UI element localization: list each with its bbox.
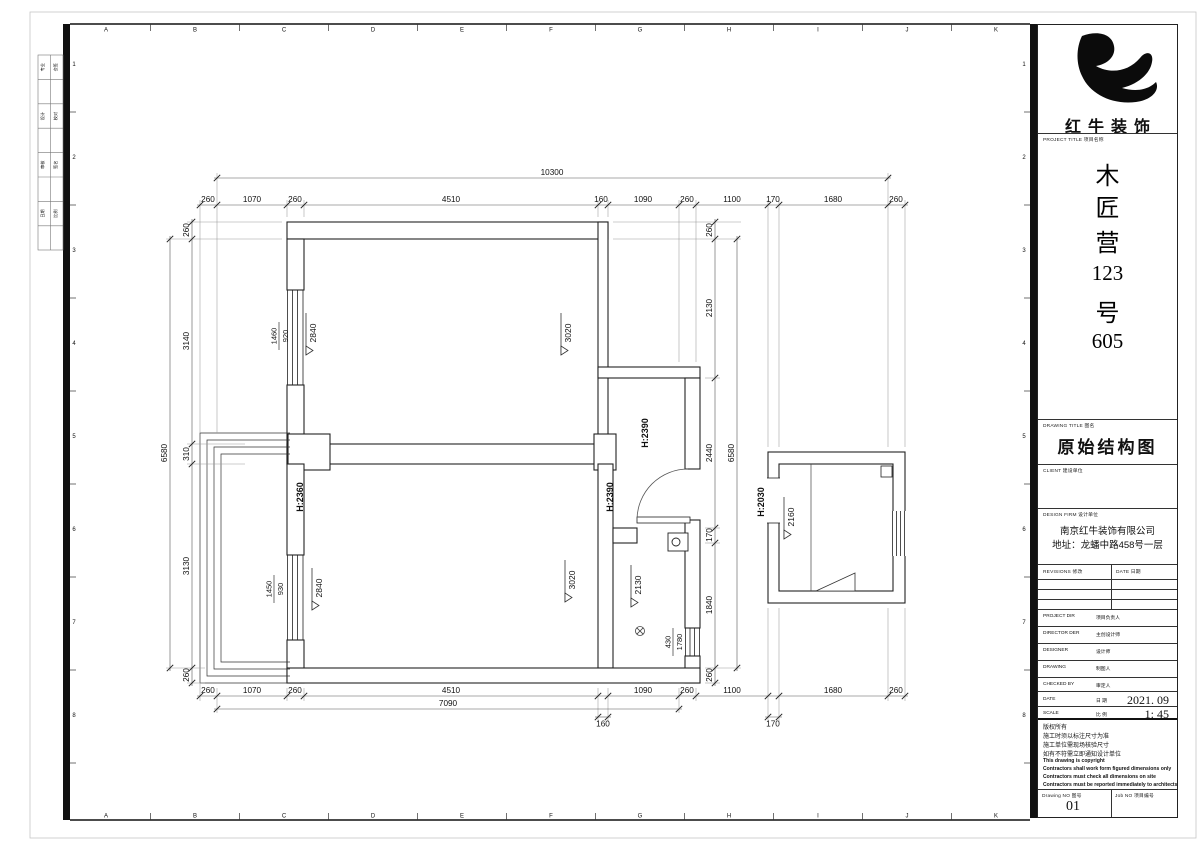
revisions-divider — [1111, 564, 1112, 609]
svg-text:B: B — [193, 814, 197, 820]
svg-text:1840: 1840 — [705, 595, 714, 614]
project-title-label: PROJECT TITLE 项目名称 — [1043, 136, 1104, 143]
entry-door — [637, 469, 690, 523]
svg-text:G: G — [638, 814, 643, 820]
svg-text:260: 260 — [680, 686, 694, 695]
project-name-char: 123 — [1038, 261, 1177, 286]
row-director: DIRECTOR DER — [1043, 631, 1079, 636]
dimension-chain: 170 — [765, 714, 782, 729]
height-label: H:2360 — [295, 482, 305, 512]
svg-text:A: A — [104, 814, 108, 820]
copyright-note: 版权所有 — [1043, 722, 1067, 731]
svg-text:170: 170 — [766, 720, 780, 729]
shaft-opening — [766, 478, 781, 523]
svg-text:260: 260 — [680, 195, 694, 204]
svg-text:4: 4 — [72, 341, 76, 347]
revisions-label: REVISIONS 修改 — [1043, 568, 1082, 575]
svg-text:4510: 4510 — [442, 195, 461, 204]
svg-text:430: 430 — [664, 636, 673, 649]
svg-text:3020: 3020 — [563, 323, 573, 342]
row-checked-by: CHECKED BY — [1043, 682, 1074, 687]
svg-text:5: 5 — [72, 434, 76, 440]
svg-text:3130: 3130 — [182, 556, 191, 575]
shaft-inner — [779, 464, 893, 591]
wall-corridor-step — [598, 367, 700, 378]
window-bathroom — [686, 628, 700, 656]
svg-text:160: 160 — [594, 195, 608, 204]
svg-text:会签: 会签 — [52, 62, 59, 71]
drawing-title-label: DRAWING TITLE 图名 — [1043, 422, 1094, 429]
svg-text:8: 8 — [72, 713, 76, 719]
window-dimension-label: 4301780 — [664, 628, 685, 656]
elevator-shaft — [766, 452, 907, 603]
svg-text:H: H — [727, 814, 731, 820]
dimension-chain: 26010702604510160109026011001701680260 — [197, 195, 908, 208]
window-room-b — [288, 555, 304, 640]
svg-text:C: C — [282, 28, 287, 34]
project-name-char: 营 — [1038, 223, 1177, 258]
svg-text:1100: 1100 — [723, 195, 741, 204]
svg-text:K: K — [994, 28, 998, 34]
svg-text:6580: 6580 — [160, 443, 169, 462]
svg-text:1780: 1780 — [675, 634, 684, 651]
svg-text:F: F — [549, 28, 553, 34]
svg-text:310: 310 — [182, 447, 191, 461]
dimension-chain: 26010702604510109026011001680260 — [197, 686, 908, 699]
svg-text:2840: 2840 — [314, 578, 324, 597]
window-dimension-label: 1460920 — [270, 322, 291, 350]
svg-text:3: 3 — [1022, 248, 1026, 254]
svg-text:260: 260 — [705, 223, 714, 237]
svg-text:审核: 审核 — [39, 160, 46, 169]
title-block: 红牛装饰 PROJECT TITLE 项目名称 木 匠 营 123 号 605 … — [1037, 24, 1178, 818]
project-name-char: 木 — [1038, 156, 1177, 191]
svg-text:7090: 7090 — [439, 699, 458, 708]
svg-text:校对: 校对 — [52, 112, 59, 120]
svg-text:260: 260 — [201, 686, 215, 695]
svg-text:930: 930 — [276, 583, 285, 596]
window-dimension-label: 1450930 — [265, 575, 286, 603]
dimension-chain: 7090 — [214, 699, 682, 712]
drawing-title: 原始结构图 — [1038, 433, 1177, 458]
floor-plan — [200, 222, 907, 683]
wall-bath-top-stub — [613, 528, 637, 543]
svg-text:比例: 比例 — [52, 209, 59, 217]
svg-text:260: 260 — [889, 195, 903, 204]
row-scale: SCALE — [1043, 711, 1059, 716]
svg-text:D: D — [371, 28, 376, 34]
svg-text:H:2030: H:2030 — [756, 487, 766, 517]
project-name-char: 605 — [1038, 329, 1177, 354]
washer-drum — [672, 538, 680, 546]
svg-text:签名: 签名 — [52, 161, 59, 169]
svg-text:1450: 1450 — [265, 581, 274, 598]
wall-right-room-a — [598, 222, 608, 464]
binding-bar — [63, 24, 70, 820]
dimension-chain: 26031403103130260 — [182, 219, 195, 686]
svg-text:4: 4 — [1022, 341, 1026, 347]
design-firm-address: 地址：龙蟠中路458号一层 — [1038, 537, 1177, 551]
svg-text:E: E — [460, 814, 464, 820]
svg-text:260: 260 — [288, 686, 302, 695]
svg-text:I: I — [817, 28, 819, 34]
row-project-dir: PROJECT DIR — [1043, 614, 1075, 619]
svg-text:2: 2 — [72, 155, 76, 161]
dimension-chain: 6580 — [727, 236, 740, 671]
svg-text:2840: 2840 — [308, 323, 318, 342]
balcony — [200, 433, 290, 683]
wall-right-upper — [685, 378, 700, 469]
svg-text:2440: 2440 — [705, 443, 714, 462]
height-label: H:2390 — [605, 482, 615, 512]
dimension-chain: 160 — [595, 714, 611, 729]
svg-text:260: 260 — [705, 668, 714, 682]
svg-text:2130: 2130 — [705, 298, 714, 317]
floor-drain-icon — [636, 627, 645, 636]
svg-text:H:2390: H:2390 — [640, 418, 650, 448]
dimension-chain: 260213024401701840260 — [705, 219, 718, 686]
design-firm-name: 南京红牛装饰有限公司 — [1038, 523, 1177, 537]
svg-text:G: G — [638, 28, 643, 34]
svg-text:H:2390: H:2390 — [605, 482, 615, 512]
svg-text:2160: 2160 — [786, 507, 796, 526]
svg-text:2130: 2130 — [633, 575, 643, 594]
svg-text:7: 7 — [72, 620, 76, 626]
titleblock-left-bar — [1030, 24, 1037, 818]
svg-text:E: E — [460, 28, 464, 34]
svg-text:8: 8 — [1022, 713, 1026, 719]
svg-text:260: 260 — [288, 195, 302, 204]
drawing-no: 01 — [1066, 799, 1080, 815]
svg-text:260: 260 — [201, 195, 215, 204]
svg-text:B: B — [193, 28, 197, 34]
row-date: DATE — [1043, 697, 1055, 702]
svg-text:1680: 1680 — [824, 686, 843, 695]
svg-text:1100: 1100 — [723, 686, 741, 695]
svg-text:1: 1 — [1022, 62, 1026, 68]
svg-text:170: 170 — [705, 528, 714, 542]
svg-text:设计: 设计 — [39, 112, 46, 120]
svg-text:1090: 1090 — [634, 195, 653, 204]
svg-text:260: 260 — [182, 223, 191, 237]
height-label: H:2390 — [640, 418, 650, 448]
height-label: H:2030 — [756, 487, 766, 517]
floor-plan-walls — [287, 222, 700, 683]
design-firm-label: DESIGN FIRM 设计单位 — [1043, 511, 1098, 518]
svg-text:1070: 1070 — [243, 686, 262, 695]
grid-references: AABBCCDDEEFFGGHHIIJJKK1122334455667788 — [70, 24, 1030, 820]
project-name-char: 号 — [1038, 293, 1177, 328]
wall-middle — [287, 444, 608, 464]
svg-text:D: D — [371, 814, 376, 820]
svg-text:1680: 1680 — [824, 195, 843, 204]
door-swing-arc — [637, 469, 688, 520]
wall-left-a-upper — [287, 239, 304, 290]
svg-text:H: H — [727, 28, 731, 34]
level-mark: 2130 — [631, 565, 643, 607]
svg-text:F: F — [549, 814, 553, 820]
svg-text:6580: 6580 — [727, 443, 736, 462]
svg-text:7: 7 — [1022, 620, 1026, 626]
level-mark: 3020 — [565, 560, 577, 602]
svg-text:日期: 日期 — [40, 209, 46, 217]
level-mark: 3020 — [561, 313, 573, 355]
job-no-label: Job NO 项目编号 — [1115, 792, 1154, 799]
shaft-duct — [881, 466, 892, 477]
svg-text:1090: 1090 — [634, 686, 653, 695]
svg-text:专业: 专业 — [39, 63, 46, 71]
svg-text:5: 5 — [1022, 434, 1026, 440]
svg-text:K: K — [994, 814, 998, 820]
svg-text:A: A — [104, 28, 108, 34]
row-designer: DESIGNER — [1043, 648, 1068, 653]
svg-text:3020: 3020 — [567, 570, 577, 589]
svg-text:H:2360: H:2360 — [295, 482, 305, 512]
svg-text:I: I — [817, 814, 819, 820]
svg-text:260: 260 — [182, 668, 191, 682]
bath-fixtures — [636, 533, 689, 636]
svg-text:160: 160 — [596, 720, 610, 729]
cad-sheet: 1030026010702604510160109026011001701680… — [0, 0, 1200, 844]
svg-text:170: 170 — [766, 195, 780, 204]
revisions-date-label: DATE 日期 — [1116, 568, 1141, 575]
wall-bottom — [287, 668, 700, 683]
dimension-chain: 6580 — [160, 236, 173, 671]
client-label: CLIENT 建设单位 — [1043, 467, 1083, 474]
level-mark: 2840 — [306, 313, 318, 355]
svg-text:920: 920 — [281, 330, 290, 343]
drawing-canvas: 1030026010702604510160109026011001701680… — [0, 0, 1200, 844]
svg-text:1: 1 — [72, 62, 76, 68]
svg-text:1070: 1070 — [243, 195, 262, 204]
svg-text:6: 6 — [72, 527, 76, 533]
svg-text:1460: 1460 — [270, 328, 279, 345]
dimensions-layer: 1030026010702604510160109026011001701680… — [38, 24, 1030, 820]
wall-top — [287, 222, 608, 239]
svg-text:260: 260 — [889, 686, 903, 695]
svg-text:J: J — [906, 814, 909, 820]
svg-text:3: 3 — [72, 248, 76, 254]
level-mark: 2840 — [312, 568, 324, 610]
sheet-frame — [30, 12, 1196, 838]
svg-text:2: 2 — [1022, 155, 1026, 161]
drawing-no-label: Drawing NO 图号 — [1042, 792, 1082, 799]
door-leaf — [637, 517, 690, 523]
project-name-char: 匠 — [1038, 188, 1177, 223]
svg-text:6: 6 — [1022, 527, 1026, 533]
svg-text:C: C — [282, 814, 287, 820]
signature-stamp-strip: 专业会签设计校对审核签名日期比例 — [38, 55, 63, 250]
svg-text:10300: 10300 — [541, 168, 564, 177]
svg-text:3140: 3140 — [182, 331, 191, 350]
row-drawing: DRAWING — [1043, 665, 1066, 670]
svg-text:J: J — [906, 28, 909, 34]
dimension-chain: 10300 — [214, 168, 891, 181]
svg-text:4510: 4510 — [442, 686, 461, 695]
